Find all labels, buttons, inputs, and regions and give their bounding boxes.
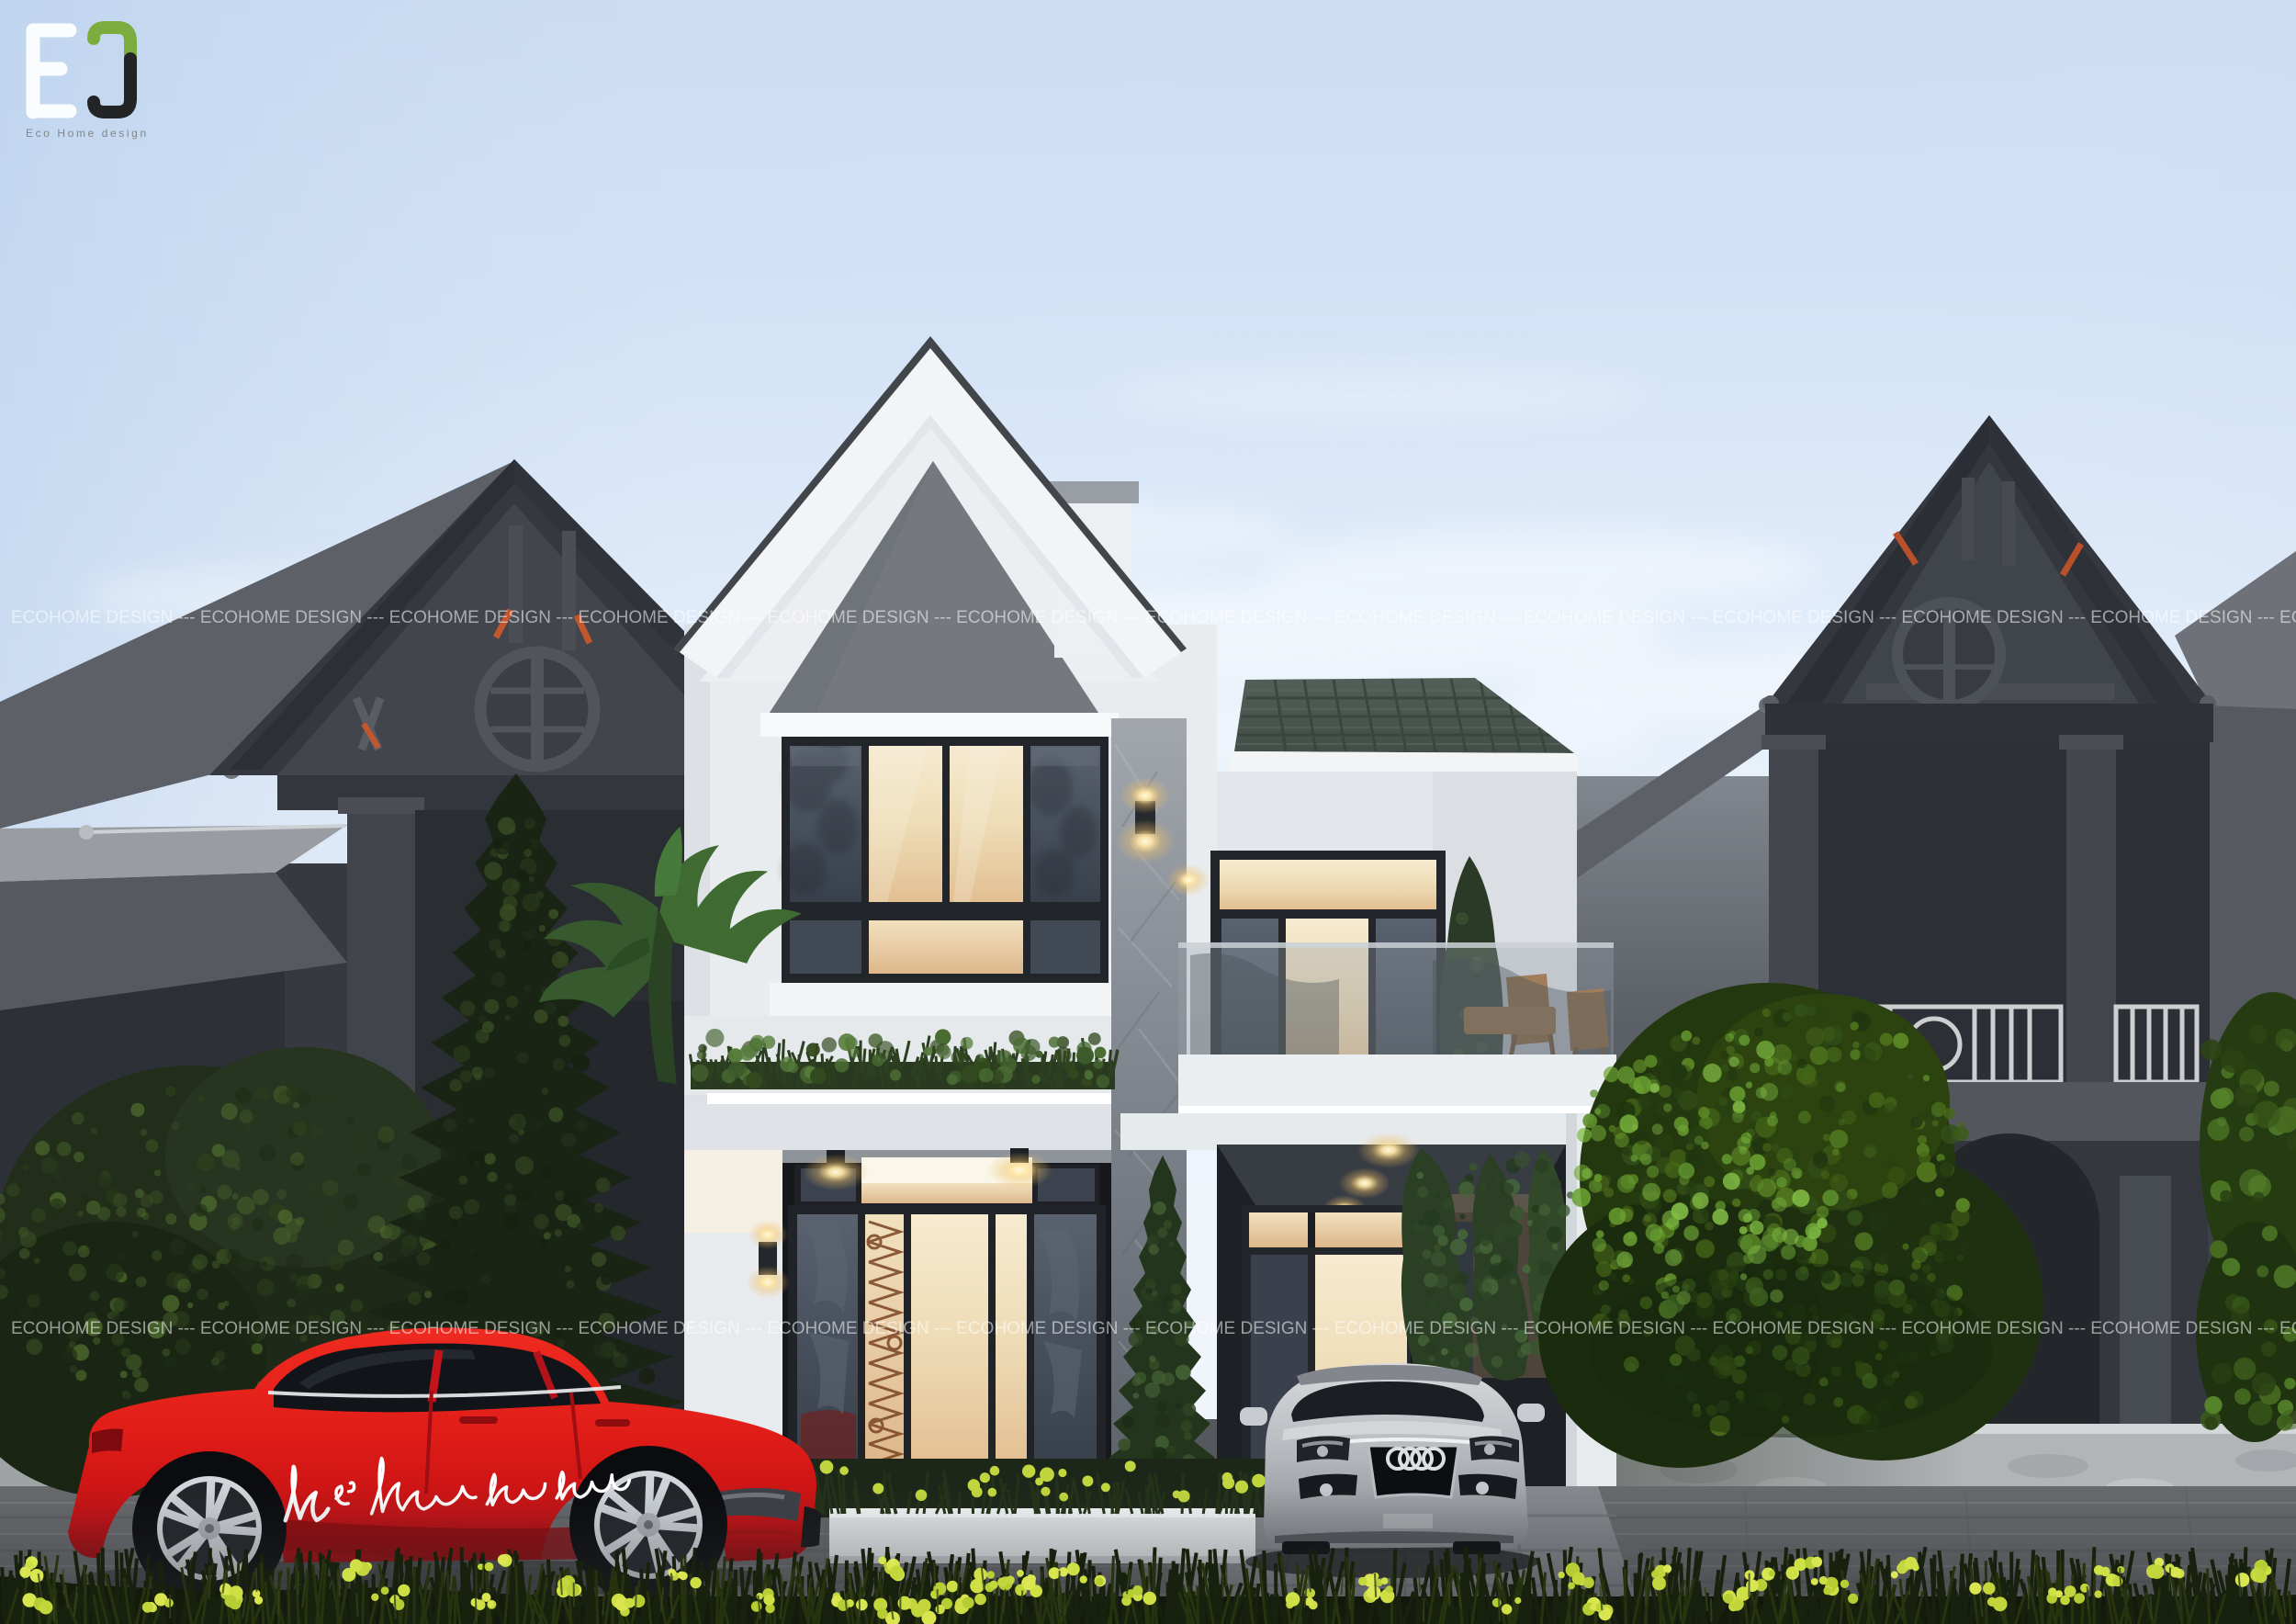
svg-text:ECOHOME DESIGN --- ECOHOME DES: ECOHOME DESIGN --- ECOHOME DESIGN --- EC… [11,608,2296,627]
svg-text:ECOHOME DESIGN --- ECOHOME DES: ECOHOME DESIGN --- ECOHOME DESIGN --- EC… [11,1319,2296,1338]
svg-text:Eco Home design: Eco Home design [26,127,149,140]
